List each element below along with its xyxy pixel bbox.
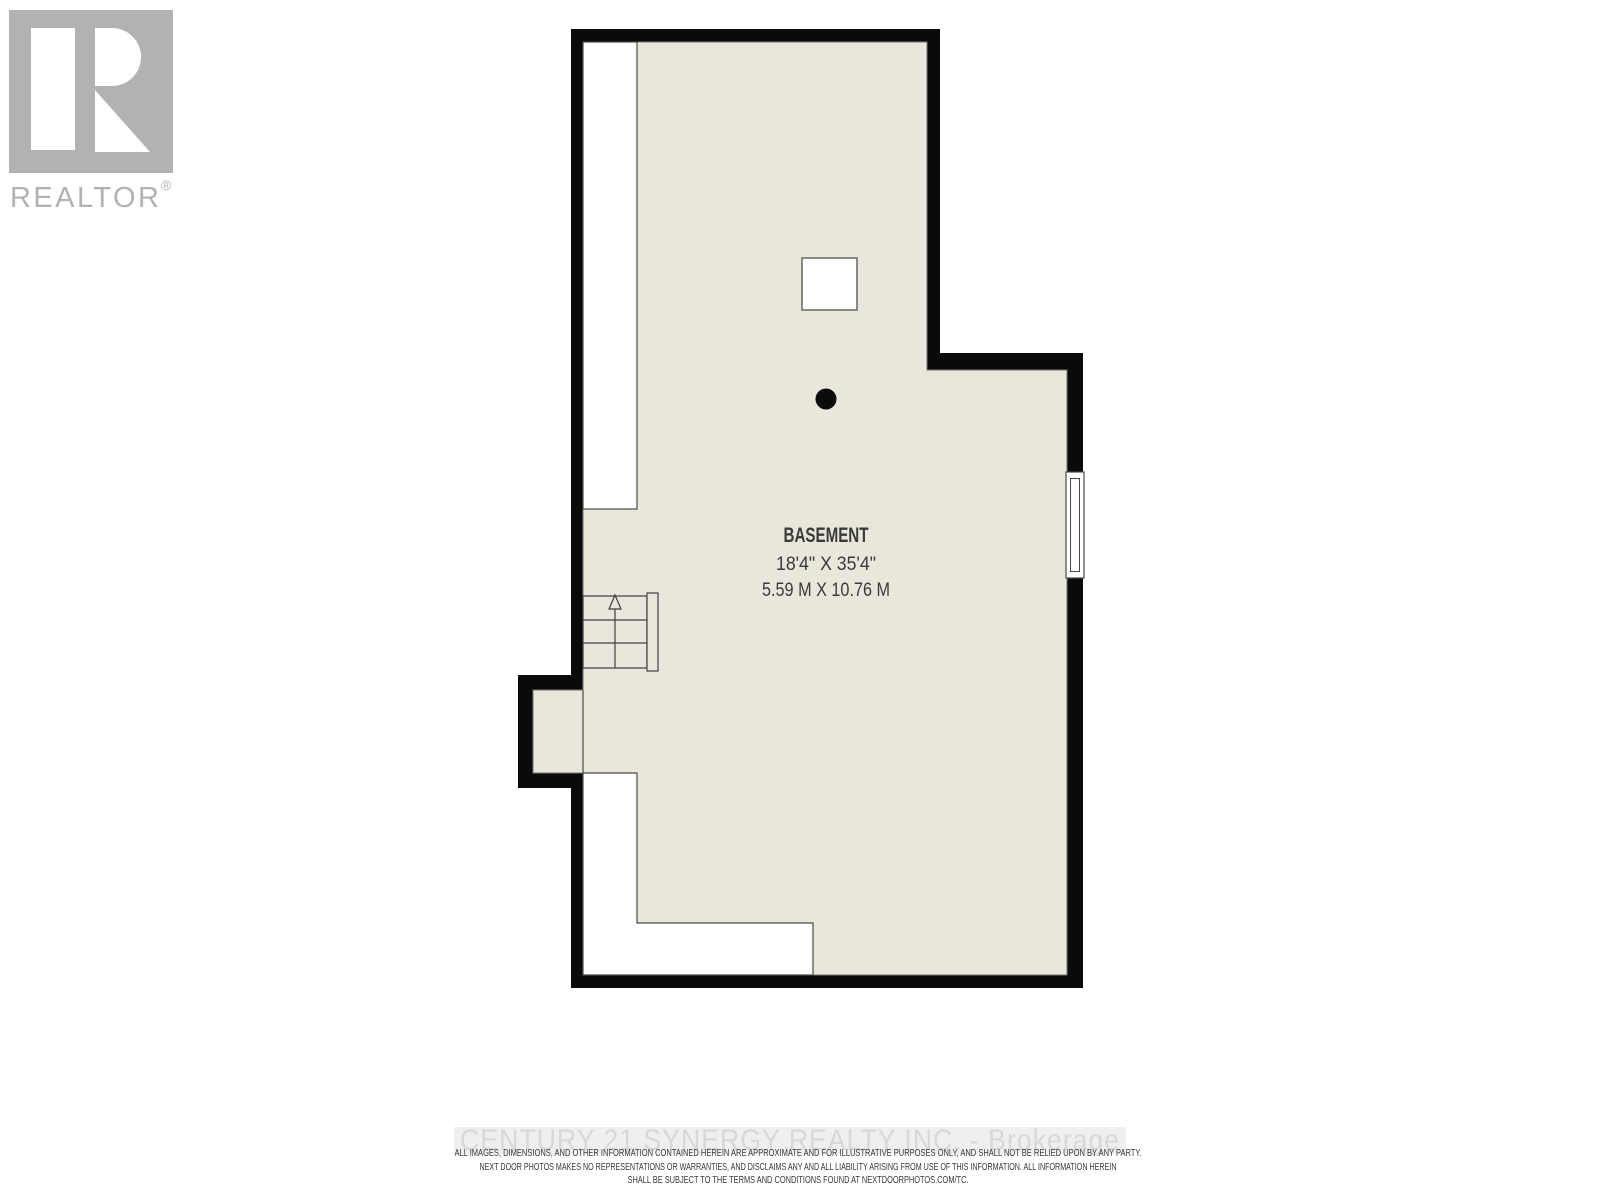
realtor-wordmark: REALTOR [10, 182, 160, 214]
staircase [583, 593, 658, 671]
room-dimensions-imperial: 18'4" X 35'4" [776, 554, 876, 575]
footer: CENTURY 21 SYNERGY REALTY INC. - Brokera… [454, 1124, 1142, 1186]
basement-floorplan: BASEMENT 18'4" X 35'4" 5.59 M X 10.76 M [518, 29, 1084, 988]
realtor-logo: REALTOR ® [9, 10, 173, 214]
disclaimer-line-2: NEXT DOOR PHOTOS MAKES NO REPRESENTATION… [480, 1161, 1117, 1173]
open-area-top [583, 42, 637, 509]
disclaimer-line-1: ALL IMAGES, DIMENSIONS, AND OTHER INFORM… [455, 1147, 1142, 1159]
support-post [816, 389, 837, 410]
room-dimensions-metric: 5.59 M X 10.76 M [762, 580, 890, 601]
floor-plan-page: REALTOR ® [0, 0, 1600, 1200]
utility-box [802, 258, 857, 310]
room-label: BASEMENT [784, 524, 869, 547]
r-stem [31, 28, 75, 150]
disclaimer-line-3: SHALL BE SUBJECT TO THE TERMS AND CONDIT… [628, 1174, 969, 1186]
registered-trademark-symbol: ® [161, 177, 172, 193]
floor-plan-canvas: REALTOR ® [0, 0, 1600, 1200]
stair-rail [647, 593, 658, 671]
window [1066, 472, 1084, 578]
window-frame [1066, 472, 1084, 578]
